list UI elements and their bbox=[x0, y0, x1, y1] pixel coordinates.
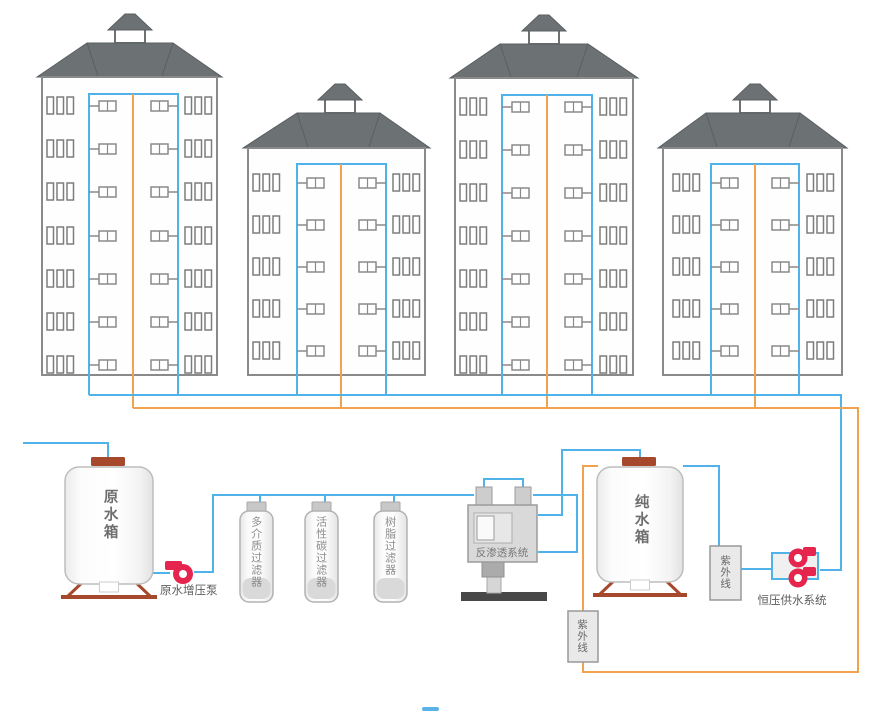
window bbox=[57, 356, 64, 373]
window bbox=[480, 227, 487, 244]
window bbox=[67, 270, 74, 287]
tank-cap bbox=[91, 457, 125, 466]
window bbox=[480, 270, 487, 287]
window bbox=[205, 227, 212, 244]
resin-filter-label: 树脂过滤器 bbox=[383, 516, 396, 576]
window bbox=[403, 342, 410, 359]
roof bbox=[37, 43, 222, 77]
window bbox=[480, 141, 487, 158]
ro-system-label: 反渗透系统 bbox=[466, 547, 538, 559]
window bbox=[480, 313, 487, 330]
window bbox=[273, 216, 280, 233]
carbon-filter-label: 活性碳过滤器 bbox=[314, 516, 327, 588]
uv-sterilizer-right-label: 紫外线 bbox=[719, 555, 731, 590]
window bbox=[57, 227, 64, 244]
ro-port bbox=[476, 487, 492, 506]
window bbox=[185, 313, 192, 330]
window bbox=[67, 313, 74, 330]
window bbox=[610, 184, 617, 201]
window bbox=[827, 342, 834, 359]
multimedia-filter-label: 多介质过滤器 bbox=[249, 516, 262, 588]
window bbox=[600, 184, 607, 201]
window bbox=[620, 270, 627, 287]
window bbox=[600, 356, 607, 373]
window bbox=[673, 258, 680, 275]
building-1 bbox=[37, 14, 222, 375]
window bbox=[57, 140, 64, 157]
window bbox=[205, 313, 212, 330]
window bbox=[827, 174, 834, 191]
window bbox=[413, 342, 420, 359]
window bbox=[673, 174, 680, 191]
building-3 bbox=[450, 15, 638, 375]
window bbox=[817, 342, 824, 359]
pure-tank-to-uv-pipe bbox=[683, 466, 719, 548]
window bbox=[57, 313, 64, 330]
window bbox=[460, 270, 467, 287]
window bbox=[185, 97, 192, 114]
building-2 bbox=[243, 84, 430, 375]
equipment-layer bbox=[61, 457, 816, 662]
window bbox=[620, 141, 627, 158]
window bbox=[817, 300, 824, 317]
window bbox=[67, 97, 74, 114]
window bbox=[470, 356, 477, 373]
window bbox=[195, 356, 202, 373]
window bbox=[600, 98, 607, 115]
window bbox=[673, 342, 680, 359]
window bbox=[470, 141, 477, 158]
window bbox=[185, 356, 192, 373]
window bbox=[253, 300, 260, 317]
ro-system bbox=[461, 487, 547, 601]
window bbox=[600, 141, 607, 158]
window bbox=[693, 216, 700, 233]
window bbox=[403, 258, 410, 275]
window bbox=[470, 227, 477, 244]
window bbox=[57, 270, 64, 287]
window bbox=[620, 227, 627, 244]
window bbox=[47, 356, 54, 373]
window bbox=[610, 227, 617, 244]
window bbox=[600, 270, 607, 287]
window bbox=[693, 258, 700, 275]
cupola-window bbox=[740, 99, 770, 113]
window bbox=[470, 184, 477, 201]
window bbox=[273, 174, 280, 191]
window bbox=[693, 174, 700, 191]
window bbox=[205, 97, 212, 114]
window bbox=[185, 140, 192, 157]
window bbox=[460, 356, 467, 373]
roof bbox=[450, 44, 638, 78]
window bbox=[403, 300, 410, 317]
window bbox=[263, 300, 270, 317]
window bbox=[67, 140, 74, 157]
window bbox=[57, 97, 64, 114]
window bbox=[263, 342, 270, 359]
pressure-supply-label: 恒压供水系统 bbox=[748, 595, 836, 608]
tank-cap bbox=[622, 457, 656, 466]
window bbox=[610, 270, 617, 287]
window bbox=[807, 216, 814, 233]
cupola-window bbox=[115, 29, 145, 43]
window bbox=[253, 342, 260, 359]
window bbox=[673, 300, 680, 317]
window bbox=[480, 356, 487, 373]
window bbox=[610, 98, 617, 115]
window bbox=[620, 98, 627, 115]
window bbox=[47, 140, 54, 157]
window bbox=[67, 227, 74, 244]
window bbox=[460, 227, 467, 244]
window bbox=[693, 342, 700, 359]
window bbox=[620, 356, 627, 373]
window bbox=[263, 216, 270, 233]
window bbox=[470, 98, 477, 115]
window bbox=[393, 174, 400, 191]
cupola-roof bbox=[733, 84, 777, 100]
cupola-window bbox=[325, 99, 355, 113]
window bbox=[185, 270, 192, 287]
uv-sterilizer-bottom-label: 紫外线 bbox=[576, 619, 588, 654]
cupola-roof bbox=[108, 14, 152, 30]
cupola-roof bbox=[318, 84, 362, 100]
window bbox=[413, 174, 420, 191]
window bbox=[480, 184, 487, 201]
window bbox=[67, 183, 74, 200]
window bbox=[185, 227, 192, 244]
window bbox=[195, 227, 202, 244]
booster-pump-label: 原水增压泵 bbox=[160, 585, 218, 598]
raw-water-inlet-pipe bbox=[23, 443, 108, 458]
cupola-window bbox=[529, 30, 559, 44]
filter-media bbox=[377, 578, 405, 599]
window bbox=[253, 174, 260, 191]
window bbox=[205, 270, 212, 287]
roof bbox=[243, 113, 430, 148]
window bbox=[470, 313, 477, 330]
window bbox=[273, 300, 280, 317]
window bbox=[610, 313, 617, 330]
window bbox=[683, 342, 690, 359]
window bbox=[807, 258, 814, 275]
window bbox=[205, 140, 212, 157]
window bbox=[413, 216, 420, 233]
tank-outlet bbox=[100, 582, 119, 592]
window bbox=[620, 313, 627, 330]
window bbox=[620, 184, 627, 201]
window bbox=[263, 174, 270, 191]
pure-water-tank-label: 纯水箱 bbox=[632, 494, 649, 547]
window bbox=[195, 313, 202, 330]
window bbox=[460, 184, 467, 201]
window bbox=[600, 313, 607, 330]
roof bbox=[658, 113, 847, 148]
window bbox=[460, 141, 467, 158]
window bbox=[195, 270, 202, 287]
window bbox=[195, 140, 202, 157]
ro-base bbox=[461, 592, 547, 601]
window bbox=[47, 183, 54, 200]
window bbox=[273, 342, 280, 359]
building-4 bbox=[658, 84, 847, 375]
window bbox=[460, 313, 467, 330]
window bbox=[807, 342, 814, 359]
window bbox=[195, 183, 202, 200]
window bbox=[693, 300, 700, 317]
window bbox=[253, 258, 260, 275]
window bbox=[205, 356, 212, 373]
window bbox=[273, 258, 280, 275]
window bbox=[393, 342, 400, 359]
window bbox=[827, 300, 834, 317]
window bbox=[827, 258, 834, 275]
ro-stem bbox=[487, 576, 501, 593]
raw-water-tank-label: 原水箱 bbox=[101, 489, 118, 542]
window bbox=[47, 227, 54, 244]
window bbox=[253, 216, 260, 233]
window bbox=[683, 258, 690, 275]
window bbox=[185, 183, 192, 200]
ro-recirculation-pipe bbox=[533, 495, 577, 552]
window bbox=[47, 270, 54, 287]
window bbox=[817, 174, 824, 191]
window bbox=[610, 356, 617, 373]
water-supply-diagram: 原水箱 原水增压泵 多介质过滤器 活性碳过滤器 树脂过滤器 反渗透系统 纯水箱 … bbox=[0, 0, 881, 714]
window bbox=[195, 97, 202, 114]
window bbox=[683, 174, 690, 191]
window bbox=[460, 98, 467, 115]
window bbox=[683, 216, 690, 233]
window bbox=[480, 98, 487, 115]
window bbox=[470, 270, 477, 287]
supply-main-pipe bbox=[89, 395, 841, 570]
window bbox=[47, 313, 54, 330]
window bbox=[807, 300, 814, 317]
video-progress-mark bbox=[422, 707, 439, 711]
window bbox=[67, 356, 74, 373]
window bbox=[393, 300, 400, 317]
tank-outlet bbox=[631, 580, 650, 590]
window bbox=[807, 174, 814, 191]
window bbox=[827, 216, 834, 233]
window bbox=[47, 97, 54, 114]
window bbox=[413, 258, 420, 275]
window bbox=[413, 300, 420, 317]
window bbox=[600, 227, 607, 244]
window bbox=[57, 183, 64, 200]
window bbox=[817, 258, 824, 275]
window bbox=[673, 216, 680, 233]
window bbox=[683, 300, 690, 317]
window bbox=[610, 141, 617, 158]
ro-port bbox=[515, 487, 531, 506]
window bbox=[393, 258, 400, 275]
window bbox=[205, 183, 212, 200]
window bbox=[263, 258, 270, 275]
cupola-roof bbox=[522, 15, 566, 31]
window bbox=[403, 216, 410, 233]
ro-screen bbox=[477, 516, 494, 540]
window bbox=[393, 216, 400, 233]
window bbox=[403, 174, 410, 191]
window bbox=[817, 216, 824, 233]
